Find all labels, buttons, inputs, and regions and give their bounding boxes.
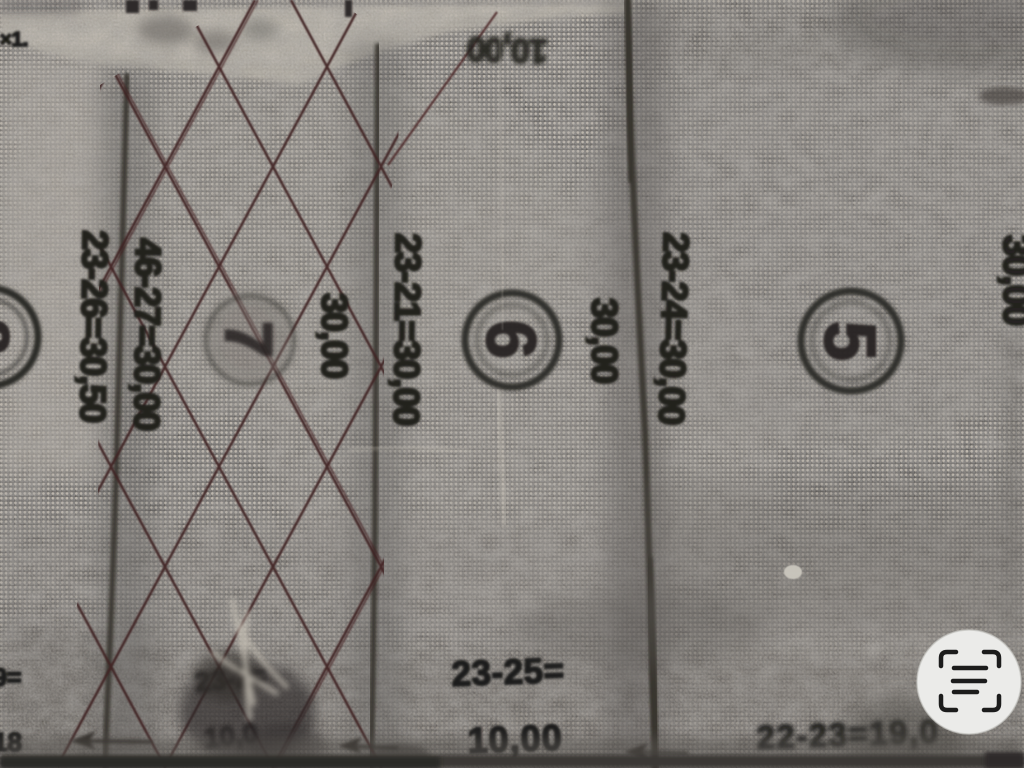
svg-text:23-24=30,00: 23-24=30,00 (651, 232, 697, 425)
svg-text:5: 5 (809, 321, 889, 361)
svg-text:23-21=30,00: 23-21=30,00 (386, 233, 429, 426)
svg-text:30,00: 30,00 (314, 293, 355, 378)
svg-text:23-26=30,50: 23-26=30,50 (72, 230, 116, 423)
svg-text:7: 7 (212, 321, 286, 358)
svg-text:9=: 9= (0, 664, 22, 692)
svg-text:6: 6 (472, 320, 550, 359)
svg-text:10,00: 10,00 (467, 29, 548, 70)
svg-text:30,00: 30,00 (584, 298, 625, 383)
svg-text:30,00: 30,00 (995, 235, 1024, 325)
svg-text:8: 8 (0, 319, 22, 355)
svg-text:46-27=30,00: 46-27=30,00 (126, 238, 169, 431)
svg-text:×1.: ×1. (0, 29, 28, 51)
svg-text:23-25=: 23-25= (451, 651, 565, 694)
